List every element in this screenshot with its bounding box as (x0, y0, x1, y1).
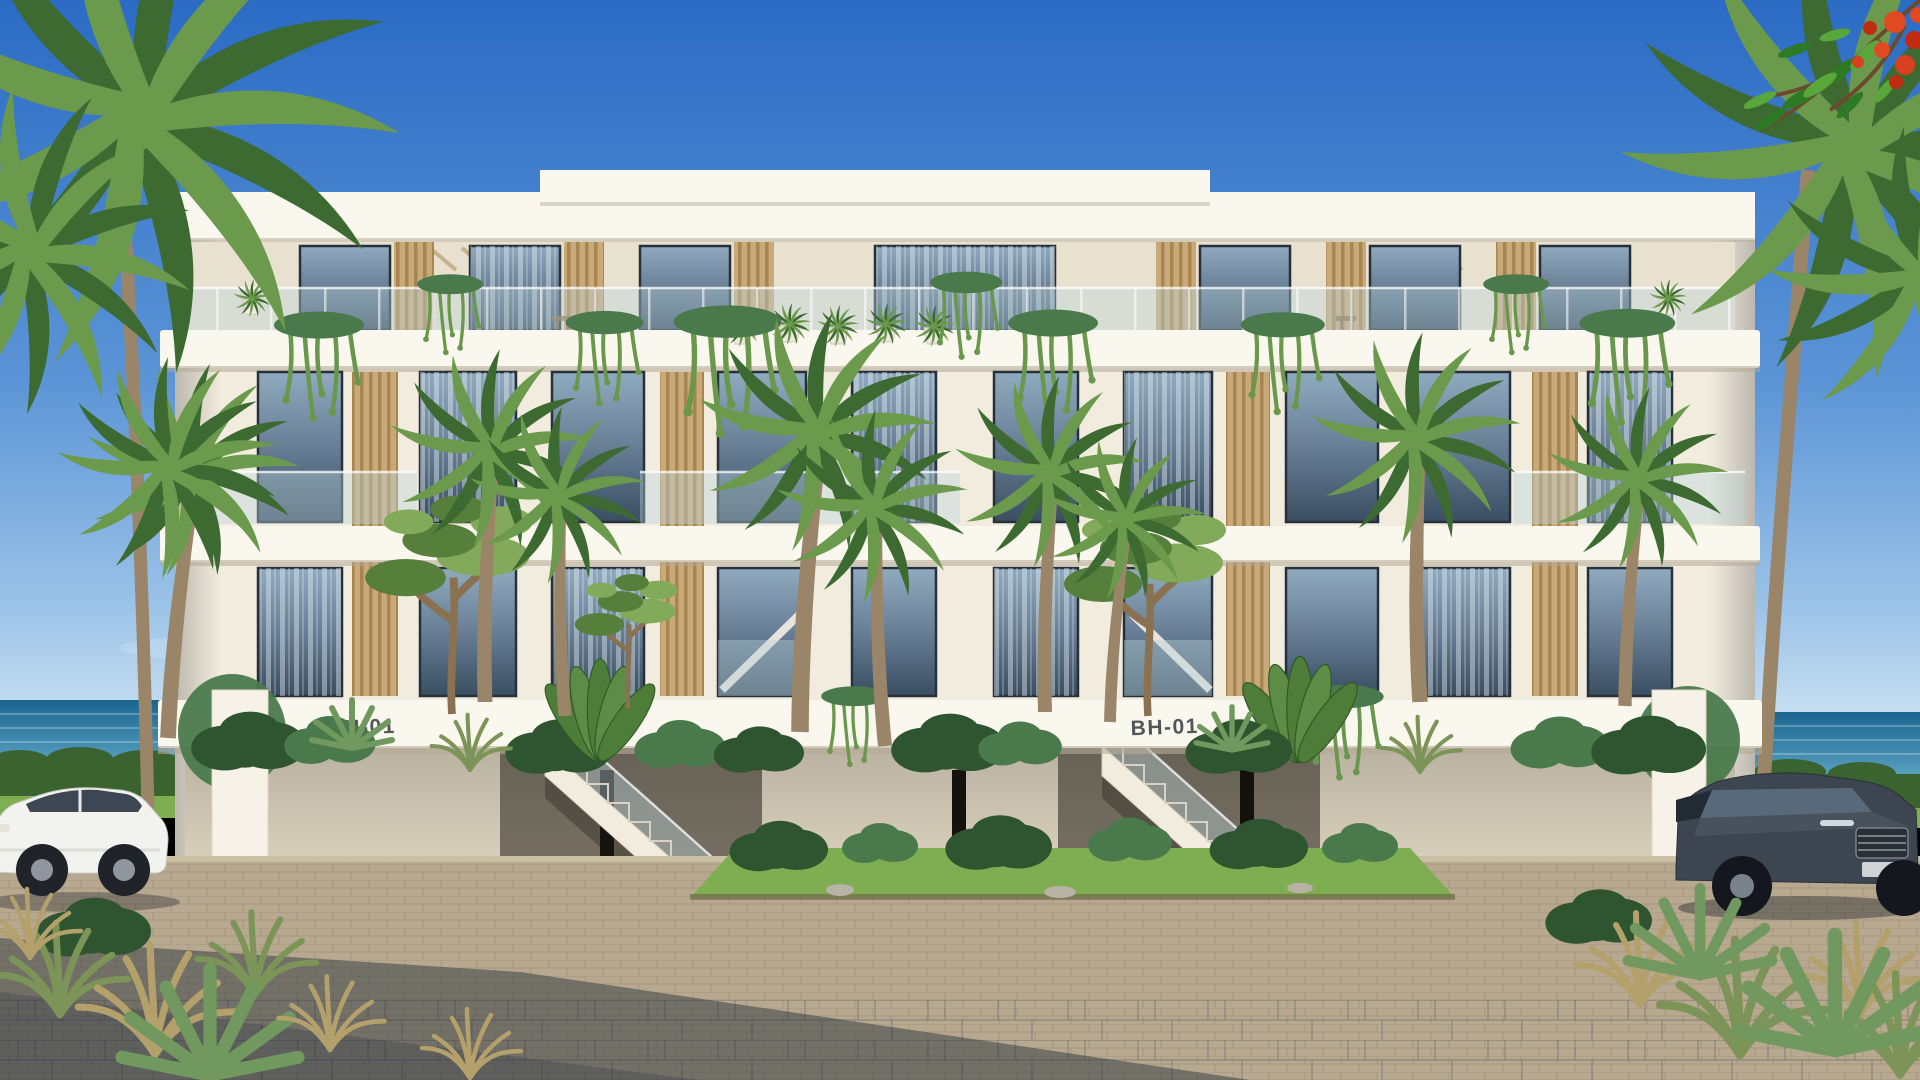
building: BH-01 BH-01 (158, 170, 1762, 948)
label-bh01-right: BH-01 (1130, 715, 1199, 740)
render-canvas: BH-01 BH-01 (0, 0, 1920, 1080)
headlight (1820, 820, 1854, 826)
scene-svg: BH-01 BH-01 (0, 0, 1920, 1080)
headlight (0, 824, 10, 832)
